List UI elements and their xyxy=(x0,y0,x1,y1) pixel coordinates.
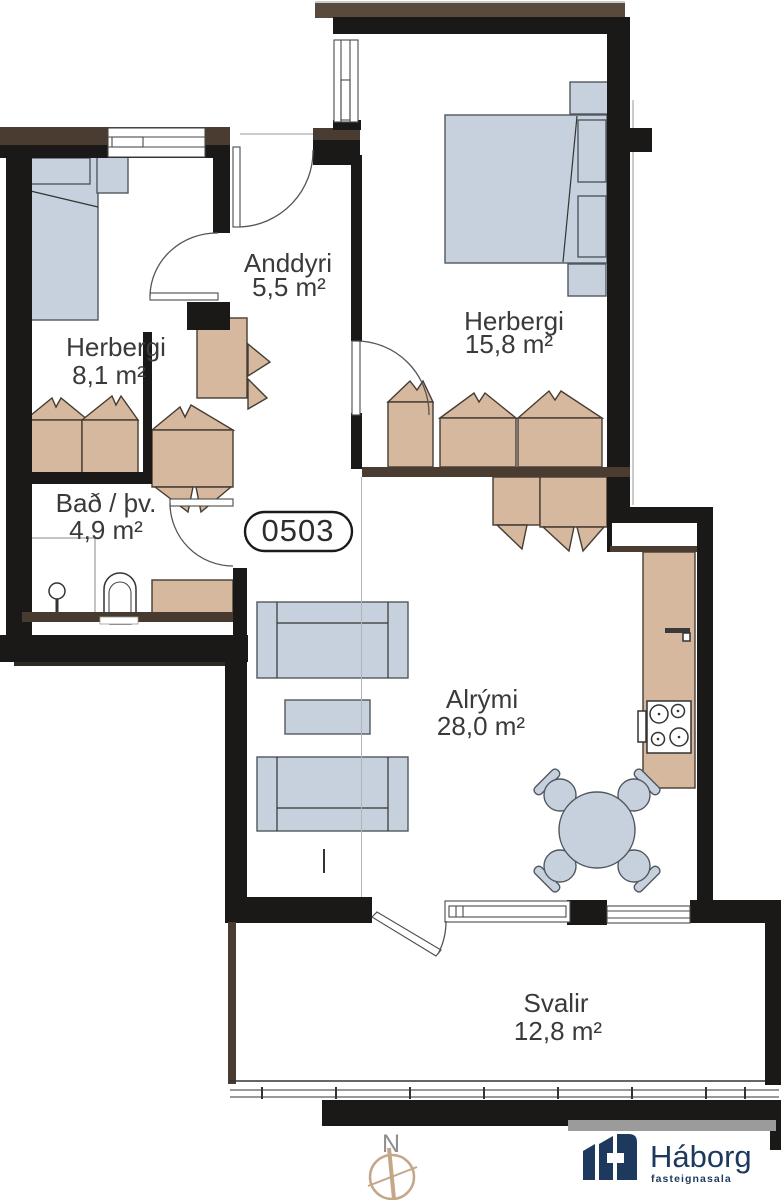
nightstand xyxy=(97,157,128,193)
brand-logo-icon xyxy=(583,1134,637,1180)
brand-tagline: fasteignasala xyxy=(651,1173,732,1185)
door-small-bedroom xyxy=(150,233,218,300)
pillow xyxy=(578,196,606,257)
wardrobe-small-bedroom xyxy=(25,396,138,473)
sink xyxy=(49,583,65,613)
door-balcony xyxy=(372,912,446,956)
room-area-anddyri: 5,5 m² xyxy=(252,272,326,302)
pillow xyxy=(578,120,606,182)
unit-badge: 0503 xyxy=(245,512,352,551)
room-area-bad: 4,9 m² xyxy=(69,515,143,545)
room-label-svalir: Svalir xyxy=(523,988,588,1018)
floor-plan-page: 0503 Herbergi 8,1 m² Anddyri 5,5 m² Herb… xyxy=(0,0,781,1200)
hall-cabinet-upper xyxy=(197,318,270,409)
brand-name: Háborg xyxy=(650,1139,752,1174)
sofa-2 xyxy=(257,757,408,831)
room-label-herbergi-small: Herbergi xyxy=(66,332,166,362)
window-small-bedroom xyxy=(108,128,205,157)
bath-cabinet xyxy=(152,580,233,613)
room-label-alrymi: Alrými xyxy=(446,684,518,714)
hall-cabinet-lower xyxy=(152,405,233,512)
window-balcony-1 xyxy=(445,901,570,922)
room-area-herbergi-large: 15,8 m² xyxy=(465,329,553,359)
room-area-alrymi: 28,0 m² xyxy=(437,711,525,741)
bed-double xyxy=(445,82,608,296)
window-balcony-2 xyxy=(607,906,690,923)
oven-handle xyxy=(638,711,646,742)
kitchen-niche-window xyxy=(610,523,697,552)
nightstand xyxy=(568,264,606,296)
room-label-bad: Bað / þv. xyxy=(56,488,157,518)
sofa-1 xyxy=(257,602,408,678)
dining-table xyxy=(559,792,635,868)
wardrobe-large-bedroom xyxy=(388,381,602,467)
bed-single xyxy=(22,153,128,320)
window-large-bedroom xyxy=(334,40,358,122)
room-area-herbergi-small: 8,1 m² xyxy=(72,360,146,390)
room-area-svalir: 12,8 m² xyxy=(514,1016,602,1046)
dining-set xyxy=(532,767,661,893)
compass-icon: N xyxy=(368,1130,417,1199)
nightstand xyxy=(570,82,608,114)
unit-number: 0503 xyxy=(262,513,335,548)
floor-plan-drawing: 0503 Herbergi 8,1 m² Anddyri 5,5 m² Herb… xyxy=(0,0,781,1200)
balcony-railing xyxy=(230,1081,779,1099)
living-cabinets xyxy=(493,477,607,551)
coffee-table xyxy=(285,700,370,734)
door-entrance xyxy=(233,134,313,227)
brand-logo: Háborg fasteignasala xyxy=(583,1134,752,1185)
